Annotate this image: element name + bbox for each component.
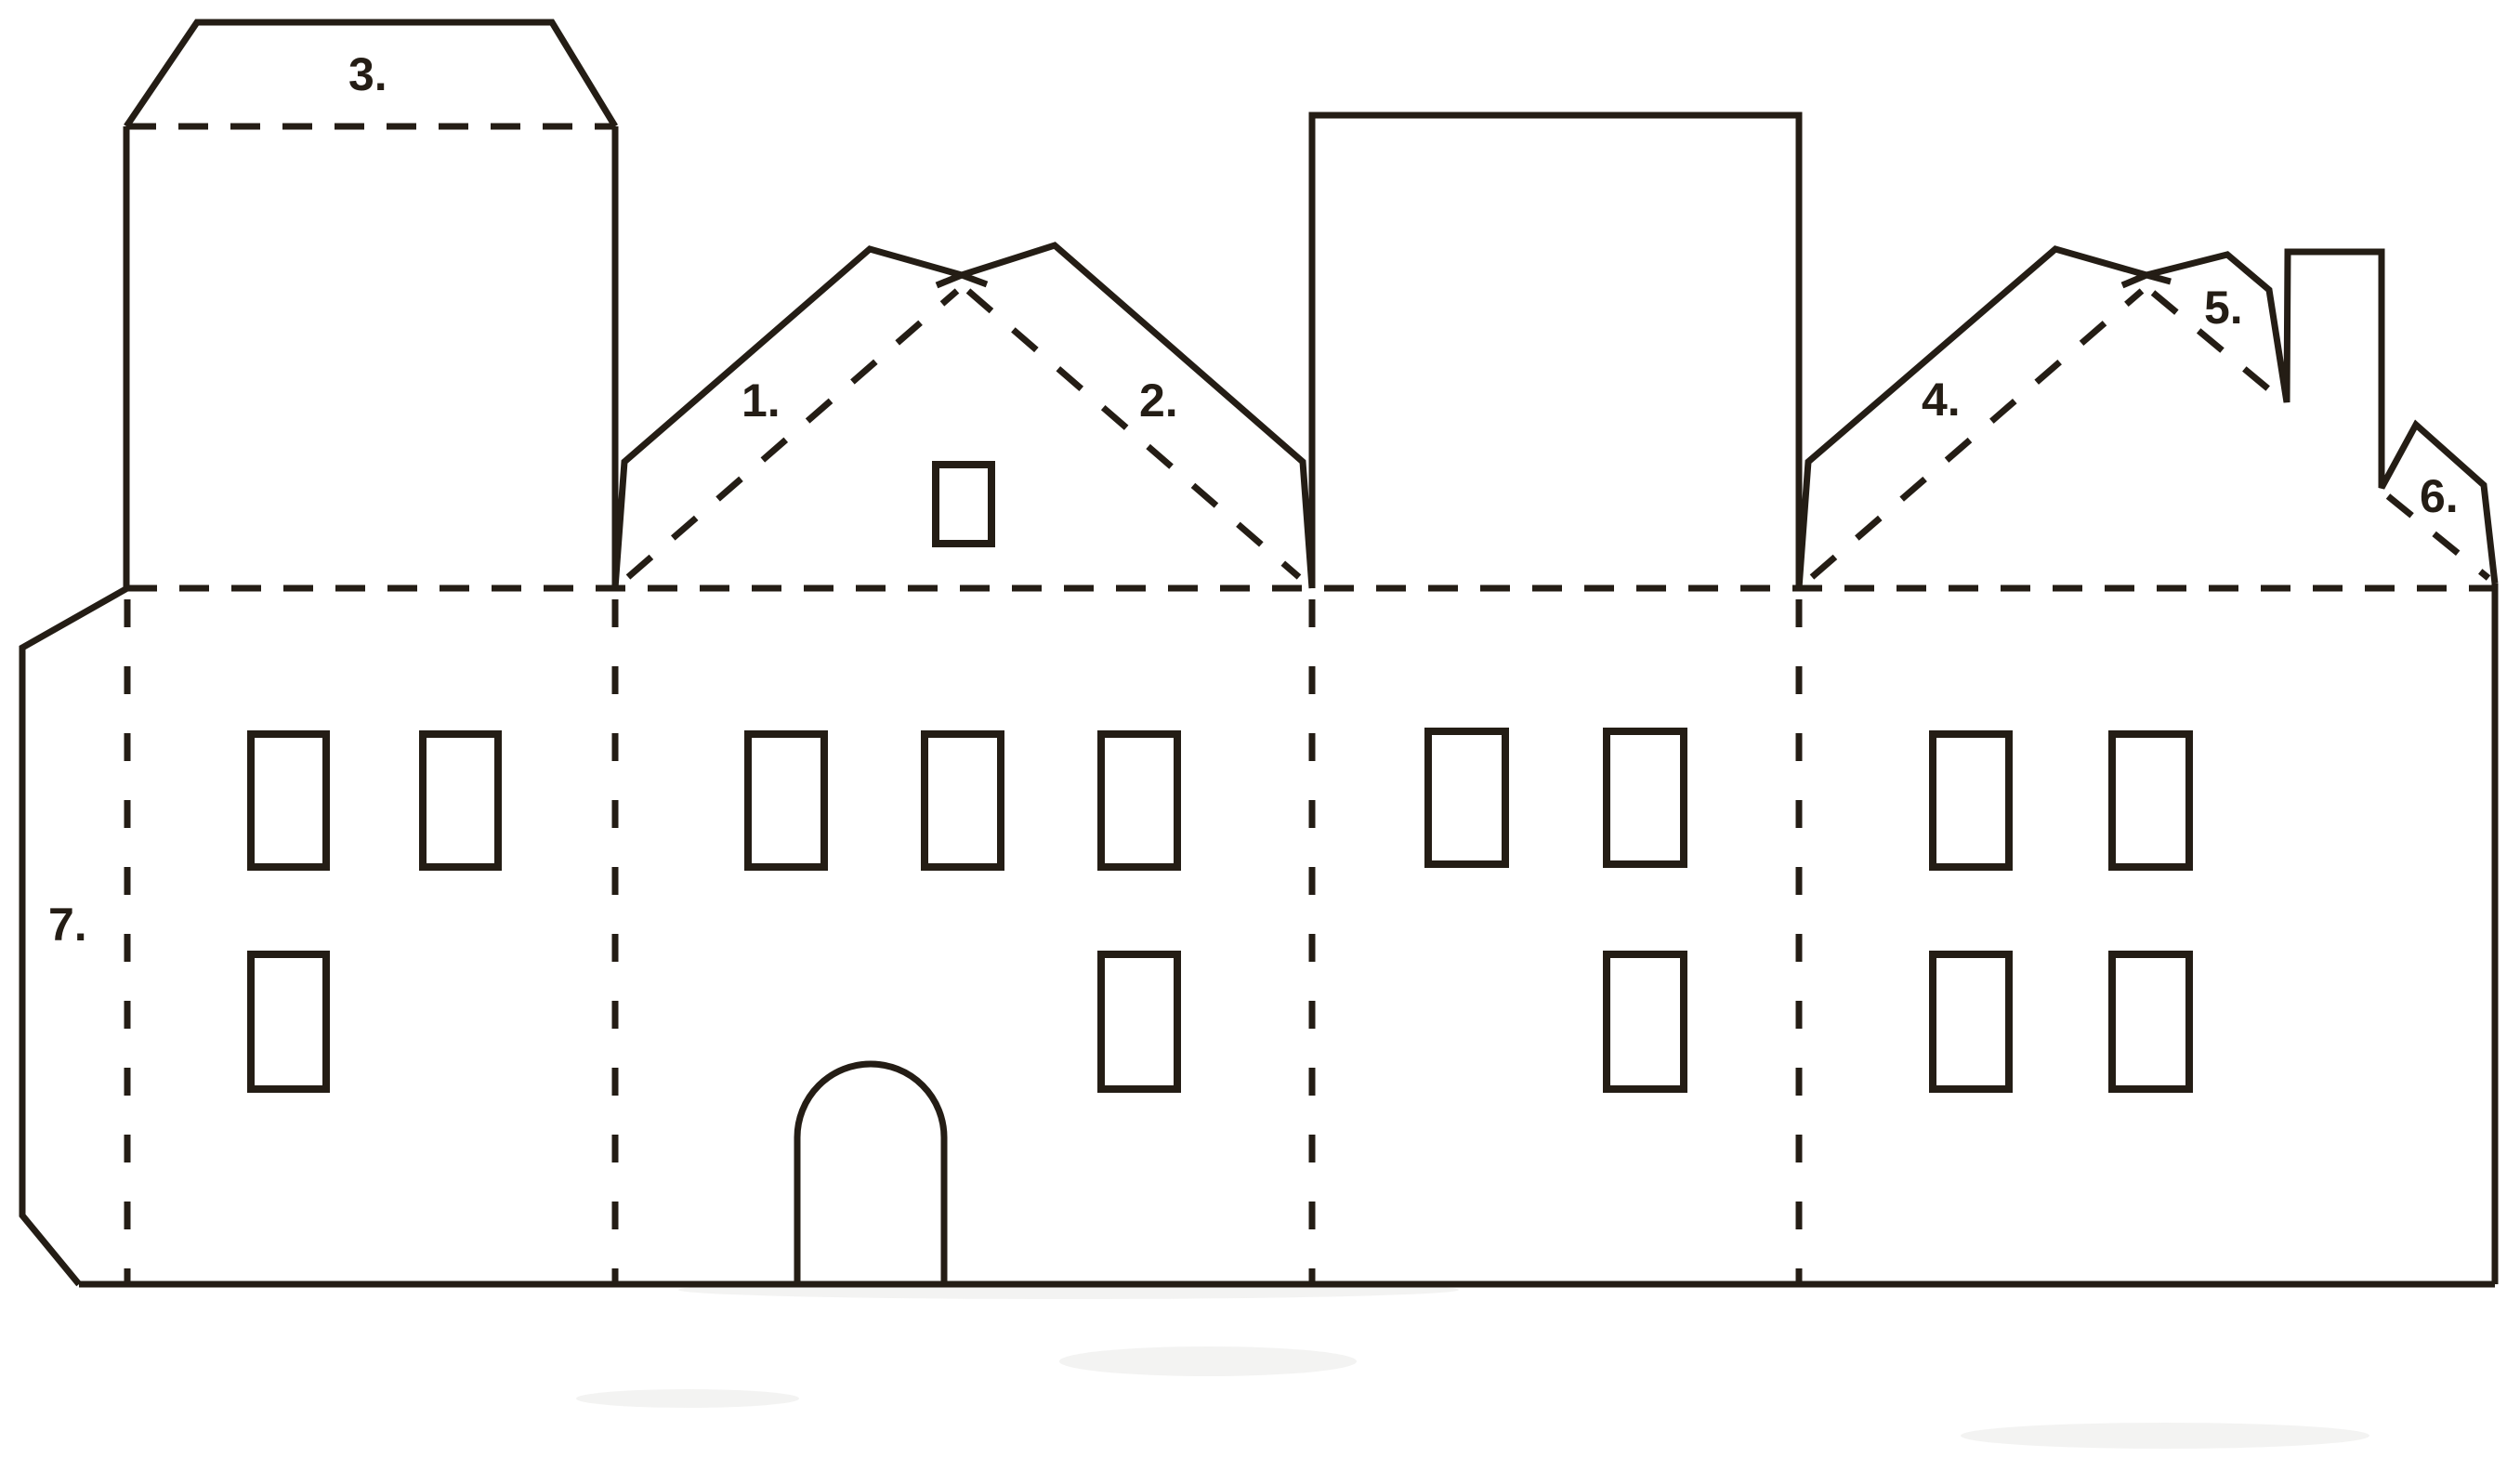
tab-label-6: 6. [2420, 470, 2459, 522]
scan-artifacts [576, 1280, 2369, 1449]
window [1428, 731, 1505, 864]
roof-fold-tab1 [628, 291, 957, 577]
roof-fold-tab4 [1812, 291, 2142, 577]
window [2112, 954, 2189, 1089]
gable-window [936, 465, 991, 544]
roof-fold-tab2 [968, 291, 1299, 577]
tab-label-1: 1. [742, 374, 781, 427]
window [423, 734, 498, 867]
template-drawing: 1. 2. 3. 4. 5. 6. 7. [0, 0, 2520, 1484]
gable-roof-outline-left-house [615, 245, 1312, 588]
scan-smudge [1961, 1423, 2369, 1449]
gable-roof-chimney-outline-right-house [1799, 249, 2495, 588]
window [1101, 734, 1177, 867]
window [251, 734, 326, 867]
tab-label-3: 3. [348, 48, 387, 100]
papercraft-template-sheet: 1. 2. 3. 4. 5. 6. 7. [0, 0, 2520, 1484]
scan-smudge [1059, 1346, 1357, 1376]
tab-label-5: 5. [2204, 282, 2243, 334]
door-arch [797, 1064, 944, 1284]
window [925, 734, 1001, 867]
window [251, 954, 326, 1089]
window [1607, 954, 1684, 1089]
tab-label-7: 7. [48, 899, 87, 951]
windows [251, 465, 2189, 1089]
window [1101, 954, 1177, 1089]
scan-smudge [576, 1389, 799, 1408]
gable-roof-dip-notch-right-house [2122, 275, 2171, 285]
window [2112, 734, 2189, 867]
window [1933, 734, 2009, 867]
gable-roof-dip-notch-left-house [937, 275, 987, 285]
tab-label-4: 4. [1922, 374, 1961, 426]
window [1607, 731, 1684, 864]
window [1933, 954, 2009, 1089]
roof-tab-rectangle-outline [1312, 115, 1799, 588]
window [748, 734, 824, 867]
tab-label-2: 2. [1139, 374, 1178, 427]
